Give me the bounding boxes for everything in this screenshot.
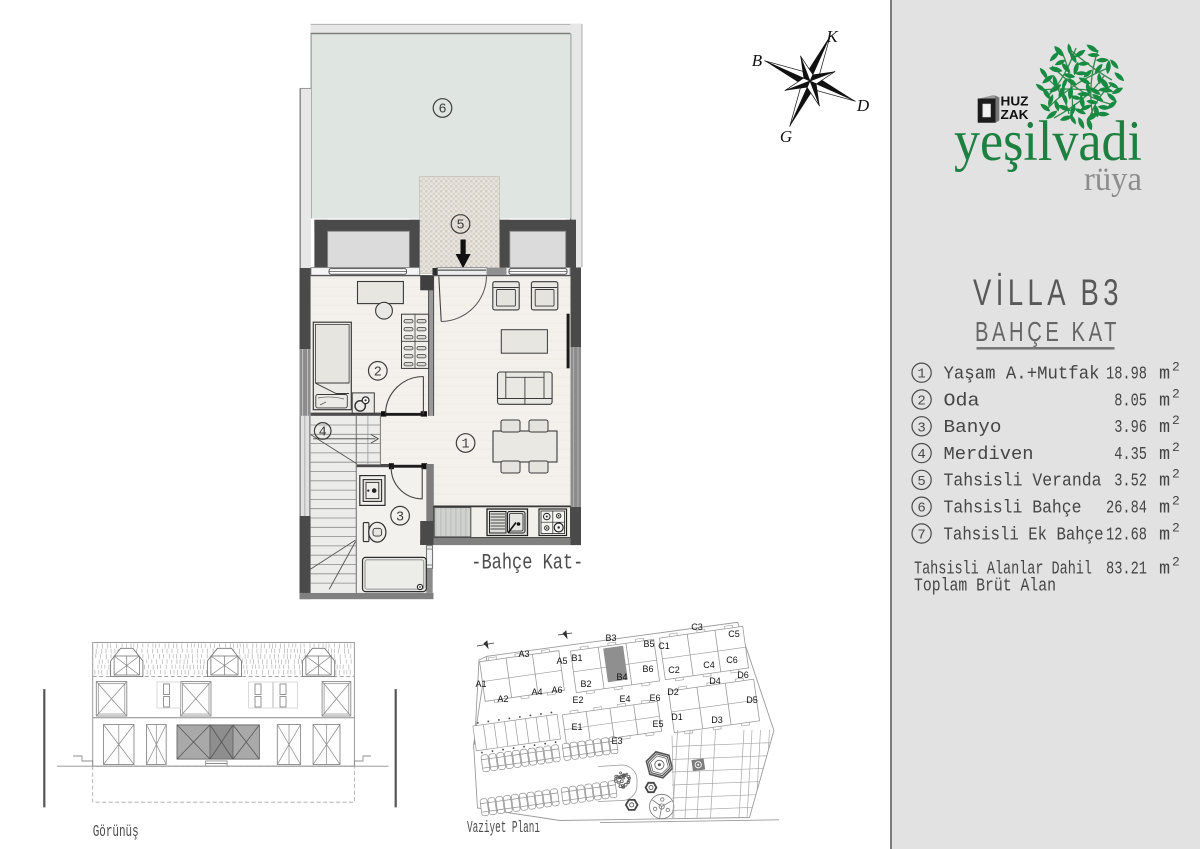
svg-text:A1: A1 xyxy=(475,679,486,689)
svg-text:A5: A5 xyxy=(556,656,567,666)
svg-text:D4: D4 xyxy=(709,676,721,686)
svg-text:Tahsisli Ek Bahçe: Tahsisli Ek Bahçe xyxy=(944,524,1104,545)
svg-text:C5: C5 xyxy=(728,629,740,639)
svg-text:Toplam Brüt Alan: Toplam Brüt Alan xyxy=(914,575,1056,596)
svg-text:Banyo: Banyo xyxy=(944,417,1002,438)
svg-text:83.21: 83.21 xyxy=(1106,558,1147,579)
svg-text:m: m xyxy=(1159,558,1170,579)
svg-text:rüya: rüya xyxy=(1084,161,1142,198)
svg-text:-Bahçe Kat-: -Bahçe Kat- xyxy=(471,551,583,576)
svg-text:VİLLA B3: VİLLA B3 xyxy=(973,272,1123,313)
svg-text:2: 2 xyxy=(1172,440,1180,455)
svg-text:3.96: 3.96 xyxy=(1114,417,1147,438)
svg-text:m: m xyxy=(1159,471,1170,492)
svg-text:3.52: 3.52 xyxy=(1114,471,1147,492)
svg-text:B4: B4 xyxy=(616,672,627,682)
svg-text:m: m xyxy=(1159,498,1170,519)
svg-text:2: 2 xyxy=(1172,413,1180,428)
svg-text:Yaşam A.+Mutfak: Yaşam A.+Mutfak xyxy=(944,364,1100,385)
svg-text:B6: B6 xyxy=(642,664,653,674)
svg-text:2: 2 xyxy=(1172,360,1180,375)
svg-text:C3: C3 xyxy=(691,622,703,632)
svg-text:HUZ: HUZ xyxy=(1001,95,1029,109)
svg-text:G: G xyxy=(780,127,792,146)
svg-text:Merdiven: Merdiven xyxy=(944,444,1034,465)
svg-text:C2: C2 xyxy=(668,665,680,675)
svg-text:26.84: 26.84 xyxy=(1106,498,1147,519)
svg-text:Oda: Oda xyxy=(944,390,980,411)
svg-text:4: 4 xyxy=(319,426,327,441)
svg-text:2: 2 xyxy=(1172,467,1180,482)
svg-text:D: D xyxy=(856,96,870,115)
svg-text:E6: E6 xyxy=(649,693,660,703)
svg-text:m: m xyxy=(1159,524,1170,545)
svg-text:1: 1 xyxy=(462,438,470,453)
svg-text:Görünüş: Görünüş xyxy=(93,822,139,841)
svg-text:6: 6 xyxy=(438,103,446,118)
svg-text:m: m xyxy=(1159,417,1170,438)
svg-text:K: K xyxy=(825,27,839,46)
svg-text:m: m xyxy=(1159,390,1170,411)
svg-text:C6: C6 xyxy=(726,655,738,665)
svg-text:A2: A2 xyxy=(497,694,508,704)
svg-text:5: 5 xyxy=(917,474,925,490)
svg-text:E2: E2 xyxy=(572,695,583,705)
svg-text:E3: E3 xyxy=(611,736,622,746)
svg-text:7: 7 xyxy=(917,528,925,544)
svg-text:3: 3 xyxy=(917,420,925,436)
svg-text:2: 2 xyxy=(1172,520,1180,535)
svg-text:D2: D2 xyxy=(667,687,679,697)
svg-text:4: 4 xyxy=(917,447,925,463)
svg-text:C1: C1 xyxy=(658,641,670,651)
svg-text:A3: A3 xyxy=(518,649,529,659)
svg-text:E1: E1 xyxy=(571,722,582,732)
svg-text:B3: B3 xyxy=(605,633,616,643)
svg-text:8.05: 8.05 xyxy=(1114,390,1147,411)
svg-text:A6: A6 xyxy=(551,685,562,695)
svg-text:Vaziyet Planı: Vaziyet Planı xyxy=(467,818,540,837)
svg-text:2: 2 xyxy=(1172,494,1180,509)
svg-text:E5: E5 xyxy=(652,719,663,729)
svg-text:4.35: 4.35 xyxy=(1114,444,1147,465)
svg-text:2: 2 xyxy=(1172,386,1180,401)
svg-text:D1: D1 xyxy=(671,712,683,722)
svg-text:B: B xyxy=(752,51,763,70)
svg-text:12.68: 12.68 xyxy=(1106,524,1147,545)
svg-text:C4: C4 xyxy=(703,660,715,670)
svg-text:Tahsisli Veranda: Tahsisli Veranda xyxy=(944,471,1102,492)
svg-text:m: m xyxy=(1159,444,1170,465)
svg-text:5: 5 xyxy=(456,219,464,234)
svg-text:2: 2 xyxy=(374,365,382,380)
svg-text:3: 3 xyxy=(396,510,404,525)
svg-text:D5: D5 xyxy=(746,695,758,705)
svg-text:6: 6 xyxy=(917,501,925,517)
svg-text:1: 1 xyxy=(917,367,925,383)
svg-text:2: 2 xyxy=(917,394,925,410)
svg-text:B1: B1 xyxy=(571,653,582,663)
svg-text:m: m xyxy=(1159,364,1170,385)
svg-text:B5: B5 xyxy=(643,639,654,649)
svg-text:B2: B2 xyxy=(580,679,591,689)
svg-text:BAHÇE KAT: BAHÇE KAT xyxy=(975,316,1120,347)
svg-text:D6: D6 xyxy=(737,670,749,680)
svg-text:A4: A4 xyxy=(531,687,542,697)
svg-text:Tahsisli Bahçe: Tahsisli Bahçe xyxy=(944,498,1082,519)
svg-text:D3: D3 xyxy=(711,715,723,725)
svg-text:E4: E4 xyxy=(619,694,630,704)
svg-text:18.98: 18.98 xyxy=(1106,364,1147,385)
svg-text:2: 2 xyxy=(1172,554,1180,569)
